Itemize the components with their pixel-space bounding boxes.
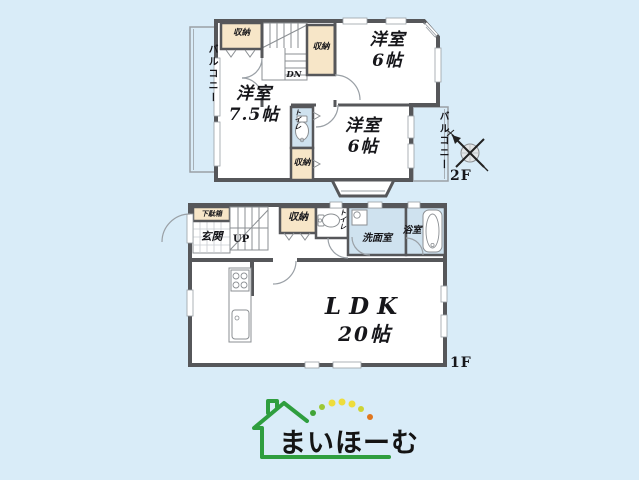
floor2-balcony-right-label: バルコニー [413,111,448,171]
floor1-toilet-label: トイレ [338,209,347,230]
sink-icon [232,310,249,339]
floor2-bay-window [332,180,394,196]
toilet-icon [318,214,340,227]
floor2-closet-center-label: 収納 [306,42,336,53]
floor2-closet-top-left-label: 収納 [221,28,262,39]
sink-icon [352,210,367,225]
bathroom-label: 浴室 [398,225,426,237]
ldk-label: LDK 20帖 [300,293,430,347]
stove-icon [231,270,249,291]
floor1-label: 1F [450,355,472,373]
logo-dots [310,399,373,421]
kitchen-counter [229,260,254,342]
north-compass-icon [447,130,488,171]
floor2-room-top-label: 洋室 6帖 [340,30,435,73]
floor2-toilet-label: トイレ [293,109,302,130]
floorplan-graphics [0,0,639,480]
entrance-label: 玄関 [193,230,230,244]
floor2-stairs-dn-label: DN [280,70,308,81]
ldk-door-gap [273,257,297,263]
shoe-cabinet-label: 下駄箱 [193,210,230,219]
floor1-closet-label: 収納 [280,212,316,225]
entrance-door-arc [162,214,190,242]
floor2-room-left-label: 洋室 7.5帖 [217,84,291,127]
floor1-stairs-up-label: UP [233,234,263,247]
floor2-label: 2F [450,168,472,186]
floor2-balcony-left-label: バルコニー [190,44,217,104]
floor2-closet-lower-label: 収納 [291,158,313,169]
floorplan-image: 収納 収納 DN 洋室 6帖 洋室 7.5帖 洋室 6帖 トイレ 収納 バルコニ… [0,0,639,480]
logo-text: まいほーむ [279,421,419,460]
floor2-room-bottom-label: 洋室 6帖 [315,116,411,159]
